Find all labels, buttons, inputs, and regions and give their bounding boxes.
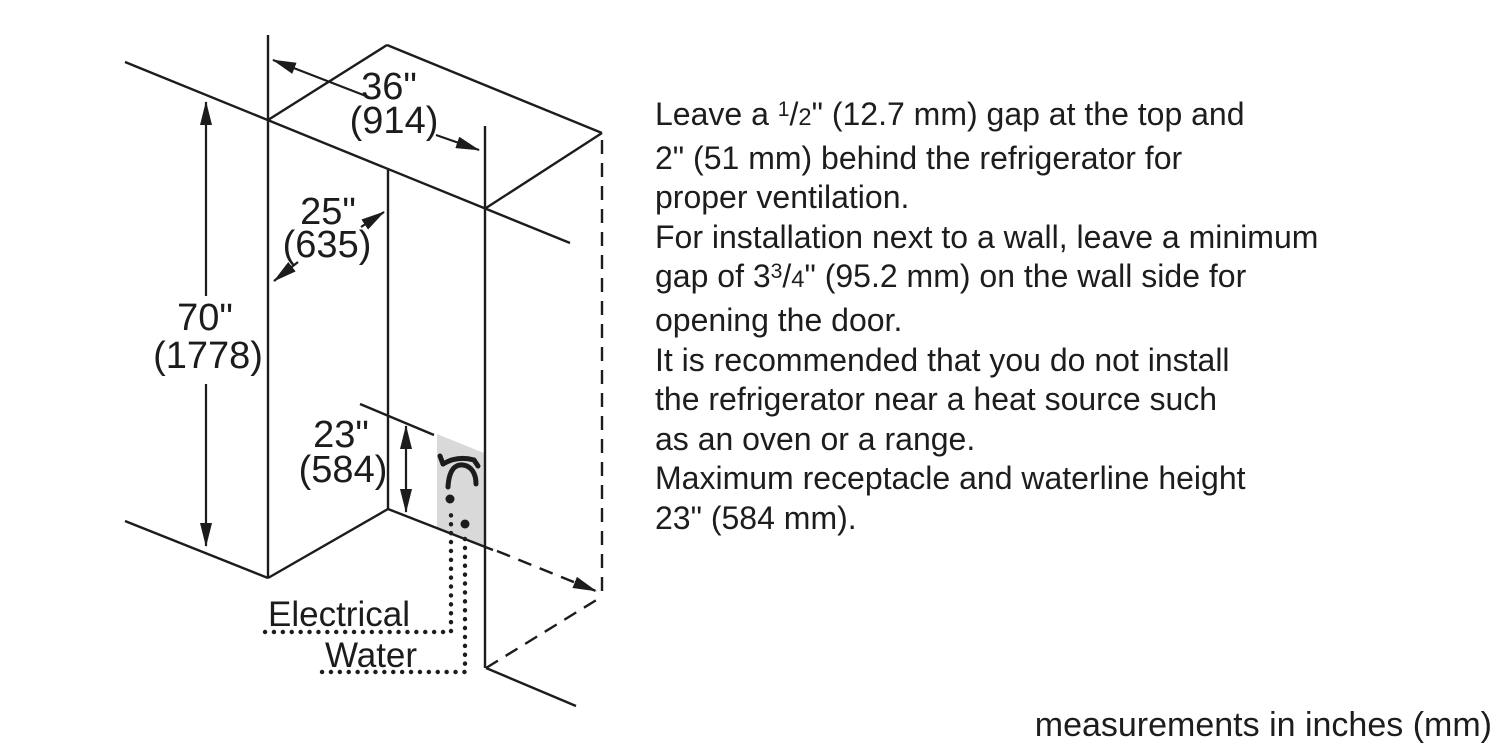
instruction-line: For installation next to a wall, leave a… xyxy=(655,218,1445,258)
dim-depth-mm: (635) xyxy=(283,224,372,266)
instruction-line: the refrigerator near a heat source such xyxy=(655,380,1445,420)
instruction-line: 2" (51 mm) behind the refrigerator for xyxy=(655,139,1445,179)
floor-right-edge-hidden xyxy=(486,599,598,668)
dim-depth-label: 25" (635) xyxy=(283,191,372,266)
instruction-line: opening the door. xyxy=(655,301,1445,341)
instruction-line: Maximum receptacle and waterline height xyxy=(655,459,1445,499)
water-label: Water xyxy=(325,636,417,675)
dimension-labels: 36" (914) 25" (635) 70" (1778) 23" (584) xyxy=(153,66,438,491)
dim-height-inches: 70" xyxy=(177,297,233,339)
instruction-line: It is recommended that you do not instal… xyxy=(655,341,1445,381)
wall-bottom-left-edge xyxy=(125,521,268,578)
water-connection-dot xyxy=(461,520,470,529)
utility-labels: Electrical Water xyxy=(268,595,417,675)
dim-width-label: 36" (914) xyxy=(350,66,439,142)
instruction-line: 23" (584 mm). xyxy=(655,499,1445,539)
instruction-line: as an oven or a range. xyxy=(655,420,1445,460)
floor-left-edge xyxy=(268,509,388,578)
installation-instructions: Leave a 1/2" (12.7 mm) gap at the top an… xyxy=(655,95,1445,539)
dim-height-label: 70" (1778) xyxy=(153,297,263,377)
hidden-edges xyxy=(486,140,602,668)
electrical-outlet-dot xyxy=(446,495,455,504)
wall-bottom-right-edge xyxy=(486,668,576,706)
width-arrow-right xyxy=(436,135,479,150)
units-note: measurements in inches (mm) xyxy=(1035,706,1492,745)
floor-back-edge-hidden xyxy=(497,551,596,591)
installation-diagram-page: 36" (914) 25" (635) 70" (1778) 23" (584) xyxy=(0,0,1500,750)
electrical-label: Electrical xyxy=(268,595,410,634)
dim-receptacle-label: 23" (584) xyxy=(299,414,388,491)
top-right-edge xyxy=(486,133,602,208)
width-arrow-left xyxy=(273,60,366,96)
dim-width-mm: (914) xyxy=(350,100,439,142)
instruction-line: Leave a 1/2" (12.7 mm) gap at the top an… xyxy=(655,95,1445,139)
instruction-line: gap of 33/4" (95.2 mm) on the wall side … xyxy=(655,257,1445,301)
dim-receptacle-mm: (584) xyxy=(299,449,388,491)
instruction-line: proper ventilation. xyxy=(655,178,1445,218)
dim-height-mm: (1778) xyxy=(153,335,263,377)
receptacle-height-witness-line xyxy=(360,404,434,435)
